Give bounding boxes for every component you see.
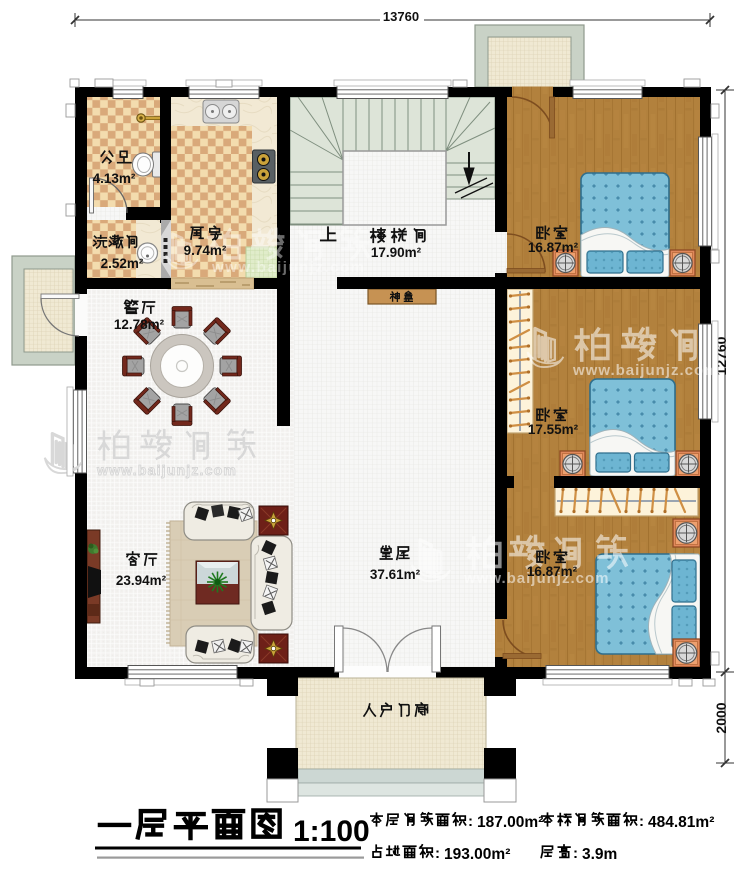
svg-text:2.52m²: 2.52m² (101, 256, 144, 271)
svg-text:13760: 13760 (383, 9, 419, 24)
svg-text::: : (573, 845, 578, 862)
svg-text:www.baijunjz.com: www.baijunjz.com (211, 259, 365, 276)
svg-text:16.87m²: 16.87m² (528, 240, 579, 255)
svg-text:193.00m²: 193.00m² (444, 846, 510, 863)
svg-text:17.55m²: 17.55m² (528, 422, 579, 437)
svg-text:37.61m²: 37.61m² (370, 567, 421, 582)
svg-text:www.baijunjz.com: www.baijunjz.com (96, 462, 237, 478)
svg-text:www.baijunjz.com: www.baijunjz.com (572, 362, 718, 379)
svg-text:16.87m²: 16.87m² (527, 564, 578, 579)
svg-text:17.90m²: 17.90m² (371, 245, 422, 260)
svg-text::: : (435, 845, 440, 862)
svg-text:2000: 2000 (713, 702, 729, 733)
svg-text:1:100: 1:100 (293, 815, 370, 848)
svg-text::: : (639, 813, 644, 830)
svg-text:12.78m²: 12.78m² (114, 317, 165, 332)
svg-text:3.9m: 3.9m (582, 846, 617, 863)
svg-text::: : (468, 813, 473, 830)
svg-text:187.00m²: 187.00m² (477, 814, 543, 831)
svg-text:4.13m²: 4.13m² (93, 171, 136, 186)
svg-text:23.94m²: 23.94m² (116, 573, 167, 588)
svg-text:484.81m²: 484.81m² (648, 814, 714, 831)
svg-text:9.74m²: 9.74m² (184, 243, 227, 258)
